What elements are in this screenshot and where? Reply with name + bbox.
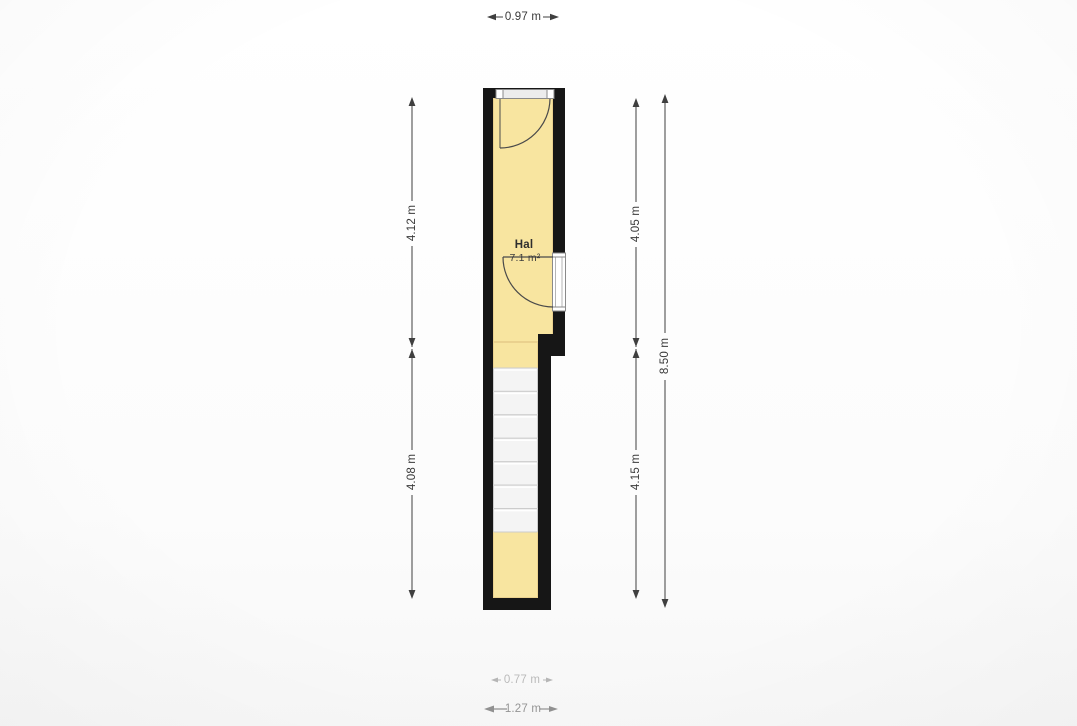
dimension-label-bottom-inner: 0.77 m: [504, 674, 540, 686]
right-door-frame: [553, 253, 566, 311]
arrow-top-right: [550, 14, 559, 20]
wall-bottom: [483, 598, 551, 610]
stair-step: [494, 415, 538, 438]
arrow-left-mid-down: [409, 338, 416, 347]
stairs: [494, 368, 538, 532]
stair-step: [494, 485, 538, 508]
top-door-jamb-left: [496, 90, 503, 99]
arrow-right-mid-down: [633, 338, 640, 347]
stair-step: [494, 368, 538, 391]
arrow-right-bottom: [633, 590, 640, 599]
top-door-threshold: [496, 90, 554, 99]
wall-right-lower: [538, 354, 551, 610]
dimension-label-left-lower: 4.08 m: [406, 454, 418, 490]
right-door-jamb-bottom: [553, 307, 566, 311]
dimension-label-bottom-outer: 1.27 m: [505, 703, 541, 715]
stair-step: [494, 462, 538, 485]
dimension-label-left-upper: 4.12 m: [406, 205, 418, 241]
arrow-left-mid-up: [409, 349, 416, 358]
stair-step: [494, 438, 538, 461]
room-name-label: Hal: [515, 239, 534, 251]
hall-floor-lower: [493, 530, 538, 598]
hall-floor-landing: [493, 342, 538, 370]
stair-step: [494, 509, 538, 532]
wall-right-step: [538, 334, 565, 356]
dimension-label-top-width: 0.97 m: [505, 11, 541, 23]
arrow-bottom-inner-left: [491, 678, 498, 683]
stair-step: [494, 391, 538, 414]
arrow-left-bottom: [409, 590, 416, 599]
room-area-label: 7.1 m²: [510, 252, 541, 264]
arrow-right-top: [633, 98, 640, 107]
wall-left: [483, 88, 493, 610]
right-door-jamb-top: [553, 253, 566, 257]
arrow-total-bottom: [662, 599, 669, 608]
dimension-label-right-upper: 4.05 m: [630, 206, 642, 242]
hall-floor-upper: [493, 98, 553, 344]
arrow-right-mid-up: [633, 349, 640, 358]
floorplan-drawing: [0, 0, 1077, 726]
arrow-left-top: [409, 97, 416, 106]
dimension-label-right-total: 8.50 m: [659, 338, 671, 374]
arrow-bottom-inner-right: [546, 678, 553, 683]
dimension-label-right-lower: 4.15 m: [630, 454, 642, 490]
top-door-jamb-right: [547, 90, 554, 99]
arrow-bottom-outer-left: [484, 706, 494, 713]
arrow-total-top: [662, 94, 669, 103]
floorplan-page: 0.97 m 4.12 m 4.08 m 4.05 m 4.15 m 8.50 …: [0, 0, 1077, 726]
arrow-top-left: [487, 14, 496, 20]
arrow-bottom-outer-right: [549, 706, 558, 712]
